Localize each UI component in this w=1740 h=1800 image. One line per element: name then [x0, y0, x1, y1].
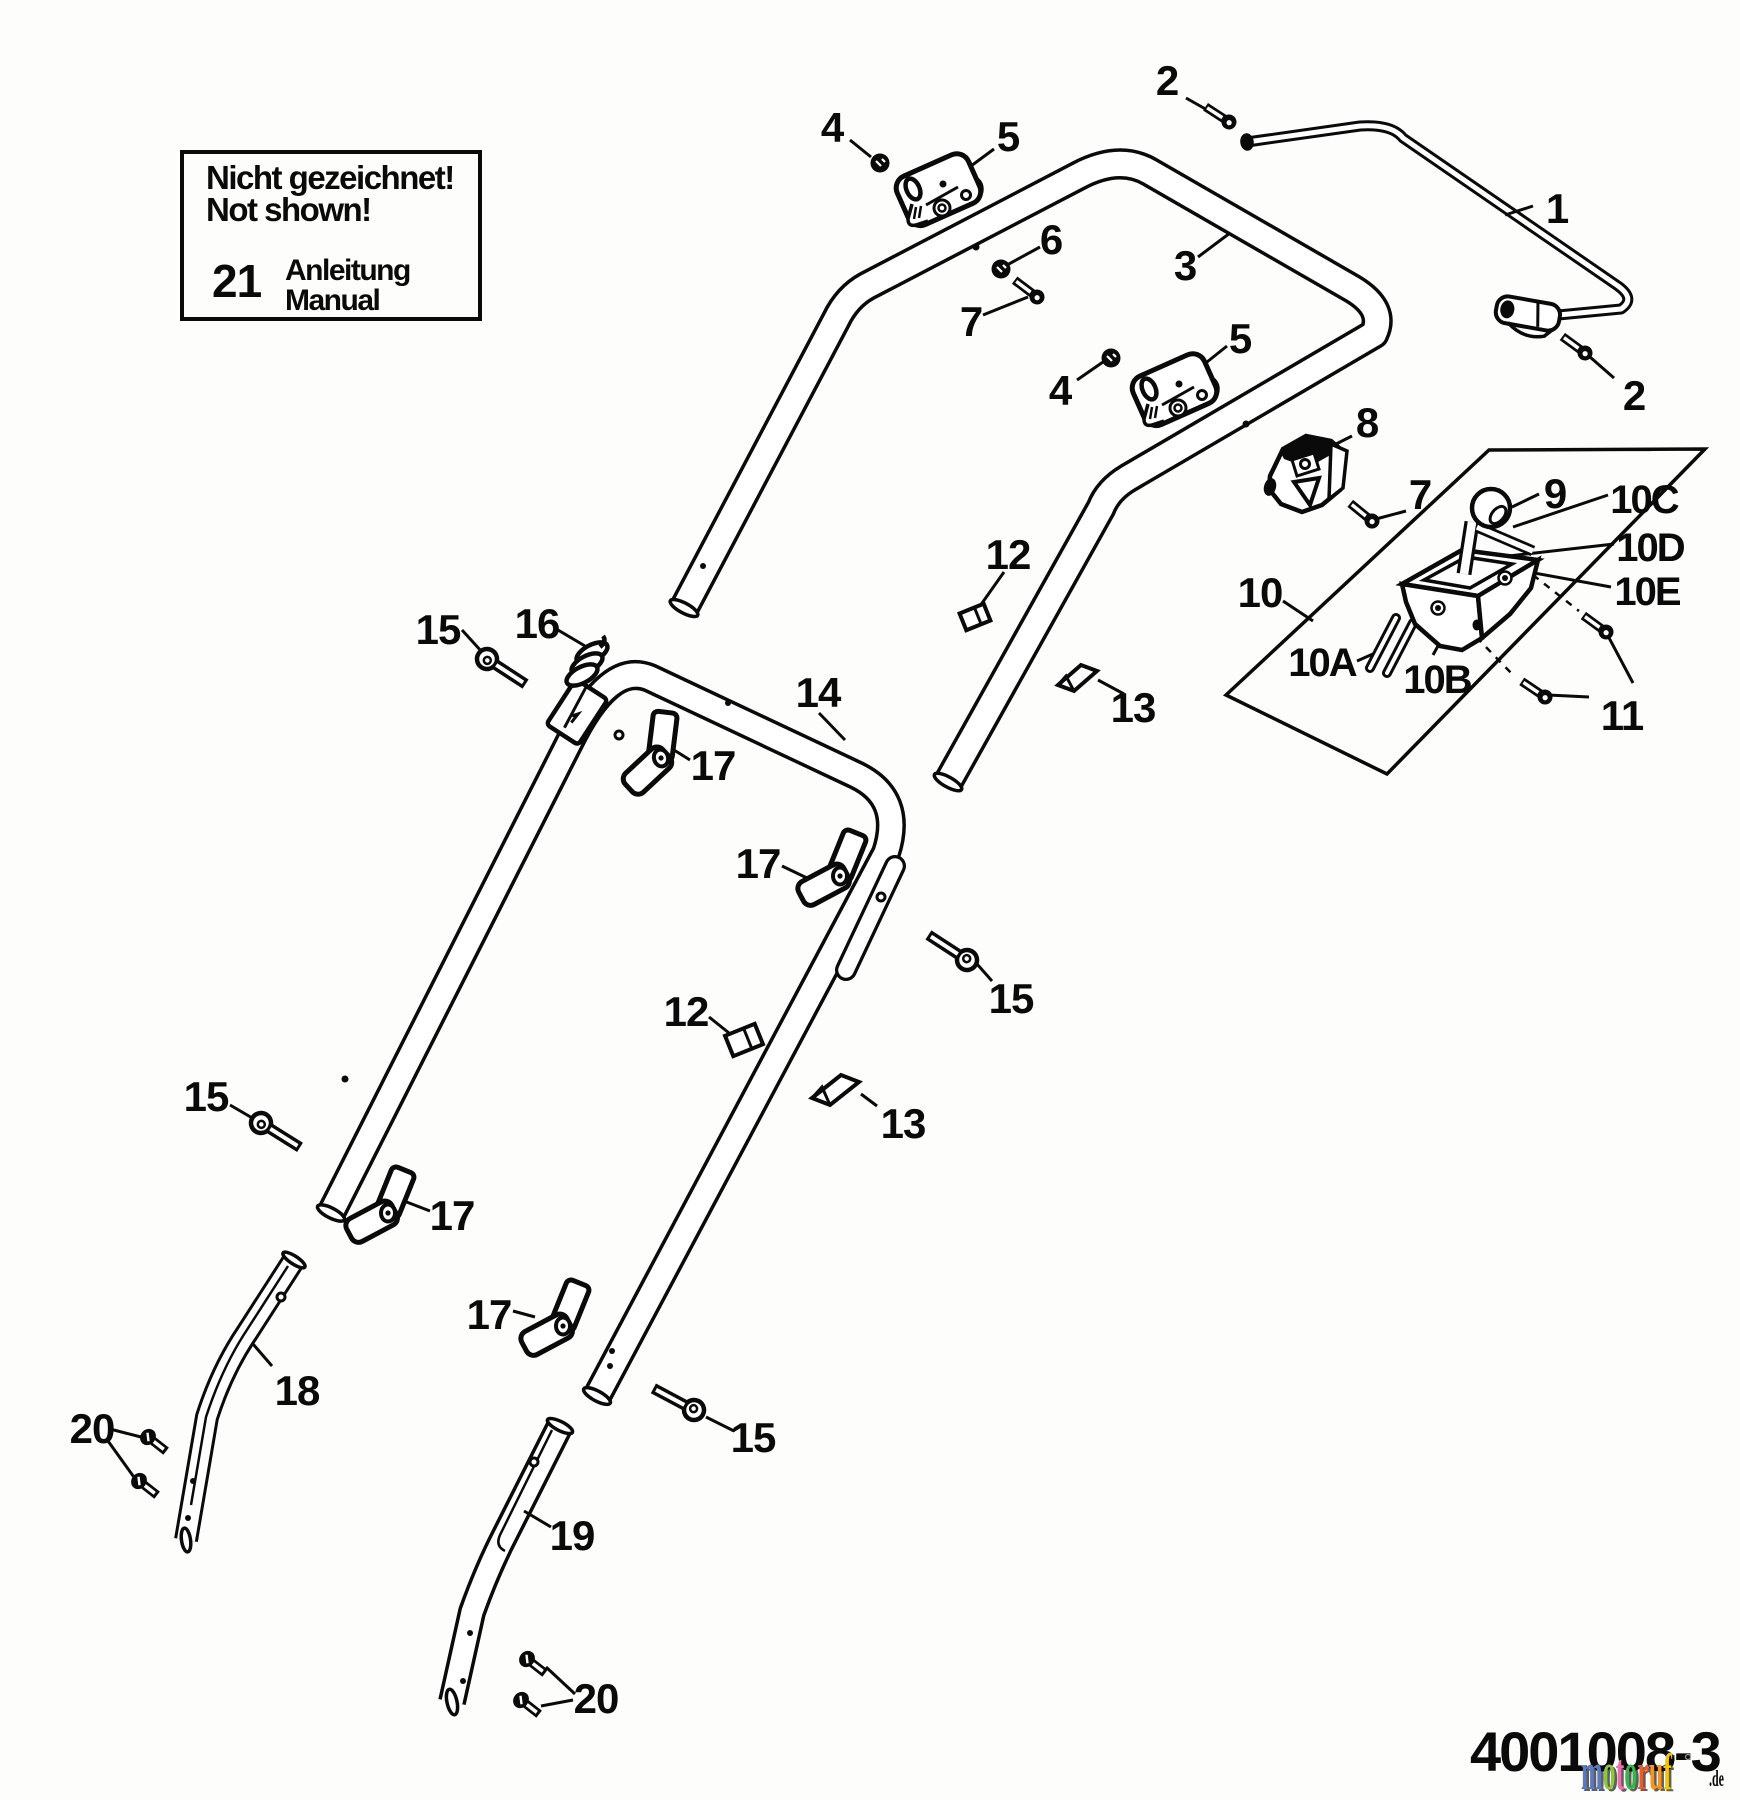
svg-text:3: 3	[1174, 242, 1196, 289]
svg-text:19: 19	[550, 1512, 595, 1559]
svg-text:5: 5	[1229, 315, 1252, 362]
svg-text:motoruf: motoruf	[1581, 1742, 1673, 1800]
svg-text:15: 15	[989, 975, 1034, 1022]
svg-text:6: 6	[1040, 216, 1062, 263]
svg-text:18: 18	[275, 1367, 320, 1414]
svg-text:20: 20	[70, 1405, 115, 1452]
svg-text:17: 17	[691, 742, 736, 789]
svg-text:17: 17	[430, 1192, 475, 1239]
svg-text:.de: .de	[1709, 1766, 1724, 1791]
svg-text:10D: 10D	[1616, 526, 1684, 570]
svg-text:14: 14	[796, 669, 842, 716]
svg-text:17: 17	[736, 840, 781, 887]
svg-text:4: 4	[1049, 367, 1073, 414]
svg-text:2: 2	[1156, 57, 1178, 104]
svg-text:20: 20	[574, 1675, 619, 1722]
svg-text:21: 21	[212, 255, 262, 307]
svg-text:5: 5	[997, 113, 1020, 160]
svg-text:10: 10	[1238, 569, 1283, 616]
svg-text:7: 7	[1409, 471, 1431, 518]
svg-text:7: 7	[960, 298, 982, 345]
svg-text:4: 4	[821, 104, 845, 151]
svg-text:12: 12	[664, 988, 709, 1035]
svg-text:16: 16	[515, 600, 560, 647]
svg-text:Not shown!: Not shown!	[206, 191, 371, 228]
svg-text:15: 15	[416, 606, 461, 653]
svg-text:2: 2	[1623, 372, 1645, 419]
svg-text:Anleitung: Anleitung	[285, 254, 410, 287]
svg-text:17: 17	[467, 1291, 512, 1338]
svg-text:1: 1	[1546, 185, 1569, 232]
svg-text:15: 15	[184, 1073, 229, 1120]
svg-text:10E: 10E	[1614, 570, 1680, 614]
svg-text:12: 12	[986, 531, 1031, 578]
svg-text:11: 11	[1601, 692, 1644, 739]
svg-text:8: 8	[1356, 399, 1379, 446]
svg-text:15: 15	[731, 1414, 776, 1461]
svg-text:Manual: Manual	[285, 284, 380, 317]
svg-text:13: 13	[881, 1100, 926, 1147]
svg-text:10A: 10A	[1288, 641, 1356, 685]
